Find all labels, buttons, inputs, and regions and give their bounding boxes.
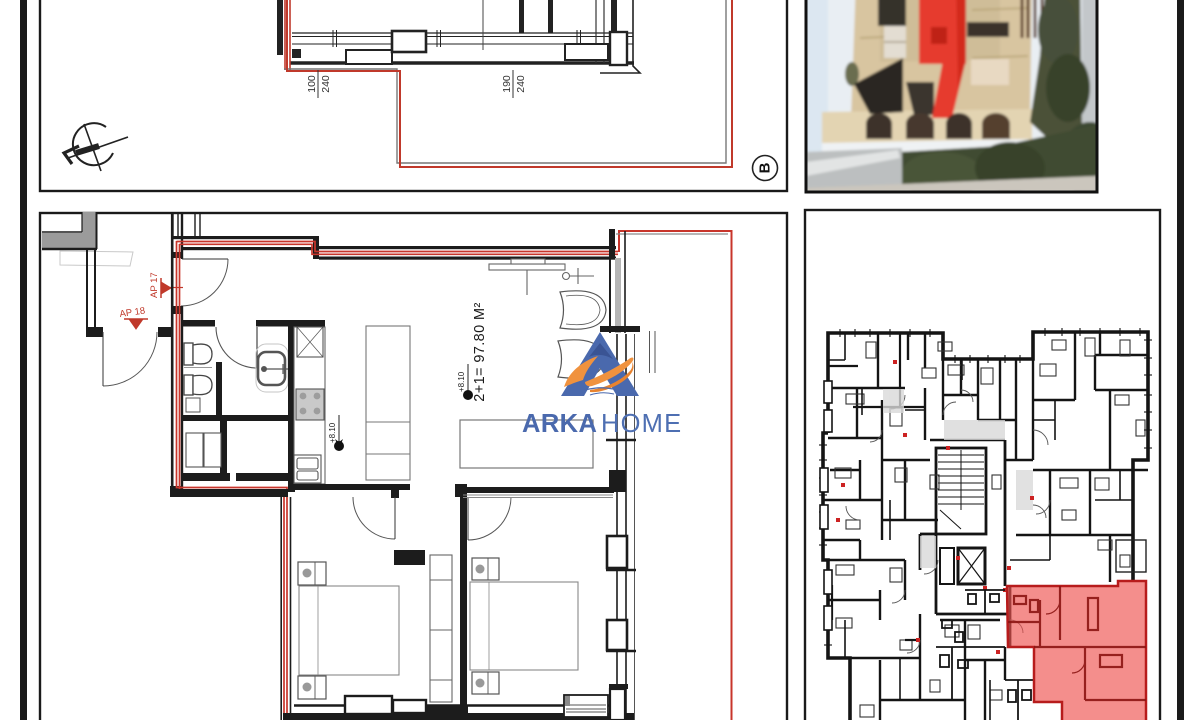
svg-text:100: 100 [306,75,318,93]
svg-text:2+1= 97.80 M²: 2+1= 97.80 M² [472,302,488,402]
svg-text:190: 190 [501,75,513,93]
svg-text:AP 17: AP 17 [149,272,160,298]
svg-text:HOME: HOME [601,410,682,438]
svg-text:+8.10: +8.10 [457,371,466,392]
svg-text:ARKA: ARKA [522,410,597,438]
svg-text:240: 240 [515,75,527,93]
svg-text:B: B [757,162,774,173]
svg-text:240: 240 [320,75,332,93]
